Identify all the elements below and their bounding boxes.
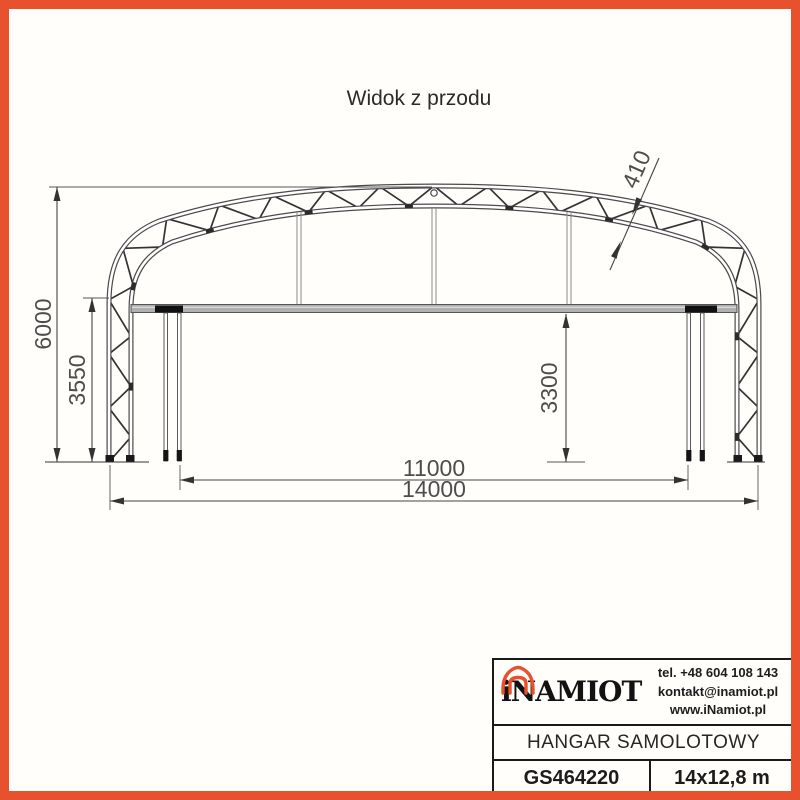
truss-web <box>109 186 759 462</box>
model-code: GS464220 <box>494 761 651 795</box>
door-posts <box>155 306 717 462</box>
title-block-header-row: iNAMIOT tel. +48 604 108 143 kontakt@ina… <box>494 660 793 726</box>
post-bracket-left <box>155 306 183 313</box>
dimension-lines <box>57 187 758 501</box>
title-block: iNAMIOT tel. +48 604 108 143 kontakt@ina… <box>492 658 795 797</box>
tent-logo-icon <box>497 662 539 698</box>
contact-email: kontakt@inamiot.pl <box>649 683 787 701</box>
truss-inner-chord <box>131 206 737 462</box>
title-block-bottom-row: GS464220 14x12,8 m <box>494 761 793 795</box>
drawing-page: Widok z przodu <box>0 0 800 800</box>
dim-label-truss-depth: 410 <box>617 146 656 192</box>
truss-inner-chord-core <box>131 206 737 462</box>
horizontal-beam <box>131 305 737 313</box>
beam-supports <box>297 208 571 305</box>
dim-label-outer-width: 14000 <box>402 476 466 502</box>
apex-ring <box>431 190 437 196</box>
brand-logo: iNAMIOT <box>494 678 649 706</box>
truss-outer-chord <box>109 186 759 462</box>
truss-arch <box>109 186 759 462</box>
post-bracket-right <box>685 306 717 313</box>
truss-outer-chord-core <box>109 186 759 462</box>
contact-phone: tel. +48 604 108 143 <box>649 664 787 682</box>
truss-connector-plates <box>129 204 739 441</box>
view-title: Widok z przodu <box>347 87 492 110</box>
dim-label-side-height: 3550 <box>64 354 90 405</box>
size-label: 14x12,8 m <box>651 761 793 795</box>
product-name: HANGAR SAMOLOTOWY <box>494 726 793 761</box>
contact-website: www.iNamiot.pl <box>649 701 787 719</box>
dim-label-clear-height: 3300 <box>536 362 562 413</box>
dim-label-total-height: 6000 <box>30 298 56 349</box>
contact-info: tel. +48 604 108 143 kontakt@inamiot.pl … <box>649 664 793 719</box>
